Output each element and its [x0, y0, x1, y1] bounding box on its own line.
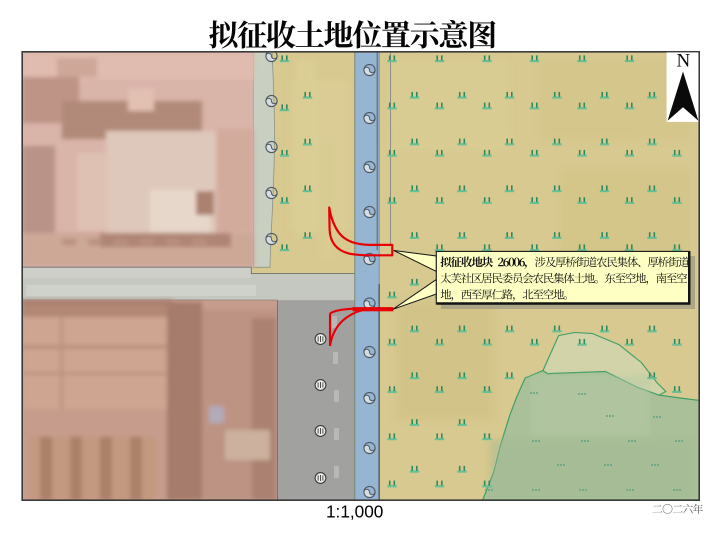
- svg-text:1:1,000: 1:1,000: [326, 502, 383, 522]
- svg-text:N: N: [677, 50, 691, 71]
